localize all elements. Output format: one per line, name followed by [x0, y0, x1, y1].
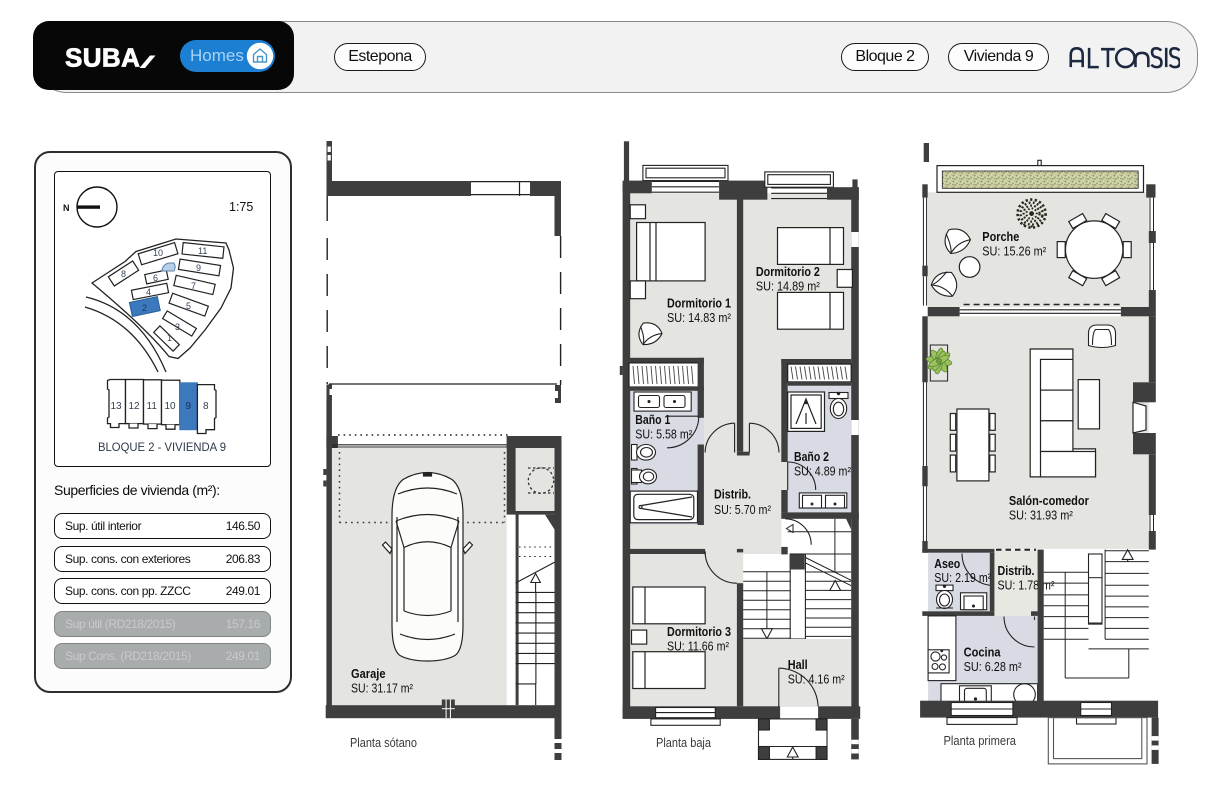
- svg-text:SU: 5.70 m²: SU: 5.70 m²: [714, 503, 771, 517]
- svg-text:Baño 1: Baño 1: [635, 412, 670, 427]
- svg-text:9: 9: [186, 401, 192, 412]
- svg-text:SU: 14.83 m²: SU: 14.83 m²: [667, 311, 731, 325]
- svg-text:SU: 5.58 m²: SU: 5.58 m²: [635, 428, 692, 442]
- svg-text:13: 13: [111, 401, 123, 412]
- svg-text:SU: 15.26 m²: SU: 15.26 m²: [982, 245, 1046, 259]
- svg-text:SUBA: SUBA: [65, 43, 140, 73]
- svg-text:5: 5: [186, 301, 191, 311]
- svg-text:12: 12: [129, 401, 141, 412]
- svg-text:11: 11: [147, 401, 158, 412]
- svg-text:SU: 31.93 m²: SU: 31.93 m²: [1009, 508, 1073, 522]
- svg-text:1:75: 1:75: [229, 200, 253, 214]
- svg-text:Planta primera: Planta primera: [944, 733, 1017, 748]
- svg-text:Distrib.: Distrib.: [998, 563, 1035, 578]
- svg-text:8: 8: [203, 401, 209, 412]
- svg-text:SU: 1.78 m²: SU: 1.78 m²: [998, 579, 1055, 593]
- svg-text:Distrib.: Distrib.: [714, 487, 751, 502]
- svg-text:SU: 2.19 m²: SU: 2.19 m²: [934, 571, 991, 585]
- svg-text:Aseo: Aseo: [934, 556, 960, 571]
- svg-text:9: 9: [196, 263, 201, 273]
- svg-text:10: 10: [153, 248, 163, 258]
- svg-text:SU: 4.16 m²: SU: 4.16 m²: [788, 673, 845, 687]
- svg-text:1: 1: [167, 333, 172, 343]
- svg-text:Porche: Porche: [982, 229, 1019, 244]
- svg-text:SU: 14.89 m²: SU: 14.89 m²: [756, 280, 820, 294]
- svg-text:8: 8: [121, 269, 126, 279]
- svg-text:2: 2: [142, 303, 147, 313]
- svg-text:Baño 2: Baño 2: [794, 449, 829, 464]
- svg-text:11: 11: [198, 246, 207, 256]
- svg-text:6: 6: [153, 273, 158, 283]
- svg-text:SU: 6.28 m²: SU: 6.28 m²: [964, 660, 1022, 674]
- svg-text:BLOQUE 2 - VIVIENDA 9: BLOQUE 2 - VIVIENDA 9: [98, 440, 226, 454]
- svg-text:Salón-comedor: Salón-comedor: [1009, 493, 1089, 508]
- svg-text:Dormitorio 3: Dormitorio 3: [667, 624, 731, 639]
- svg-text:Planta sótano: Planta sótano: [350, 735, 417, 750]
- svg-text:10: 10: [165, 401, 177, 412]
- svg-text:7: 7: [191, 281, 196, 291]
- svg-text:Planta baja: Planta baja: [656, 735, 712, 750]
- svg-text:SU: 31.17 m²: SU: 31.17 m²: [351, 682, 413, 696]
- svg-text:SU: 4.89 m²: SU: 4.89 m²: [794, 464, 851, 478]
- svg-text:Hall: Hall: [788, 657, 808, 672]
- svg-text:3: 3: [175, 322, 180, 332]
- svg-text:N: N: [63, 203, 70, 213]
- svg-text:Dormitorio 1: Dormitorio 1: [667, 296, 731, 311]
- svg-text:4: 4: [146, 287, 151, 297]
- svg-text:SU: 11.66 m²: SU: 11.66 m²: [667, 640, 729, 654]
- svg-text:Dormitorio 2: Dormitorio 2: [756, 264, 820, 279]
- svg-text:Garaje: Garaje: [351, 666, 386, 681]
- svg-text:Cocina: Cocina: [964, 645, 1002, 660]
